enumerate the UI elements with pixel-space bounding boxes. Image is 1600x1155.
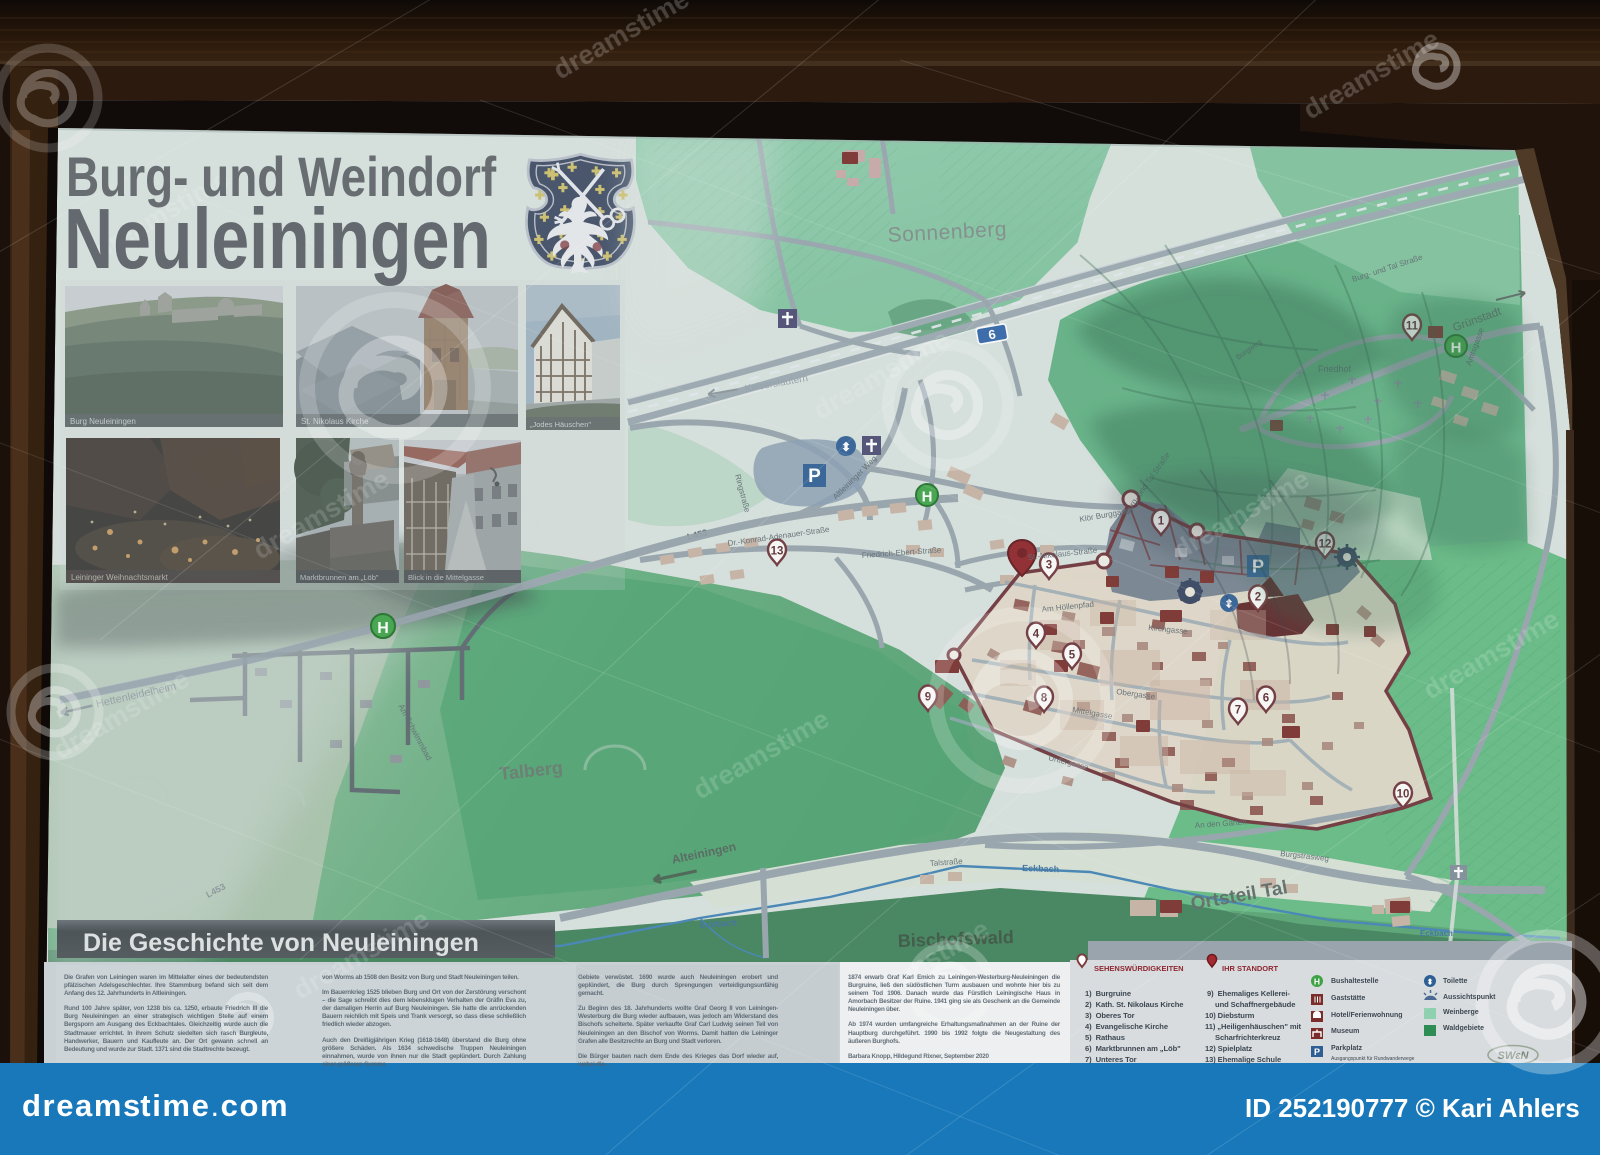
svg-text:dreamstime: dreamstime [548, 0, 694, 85]
svg-text:dreamstime: dreamstime [688, 703, 834, 805]
svg-text:dreamstime: dreamstime [1298, 23, 1444, 125]
svg-text:dreamstime: dreamstime [1168, 463, 1314, 565]
svg-text:dreamstime: dreamstime [1418, 603, 1564, 705]
